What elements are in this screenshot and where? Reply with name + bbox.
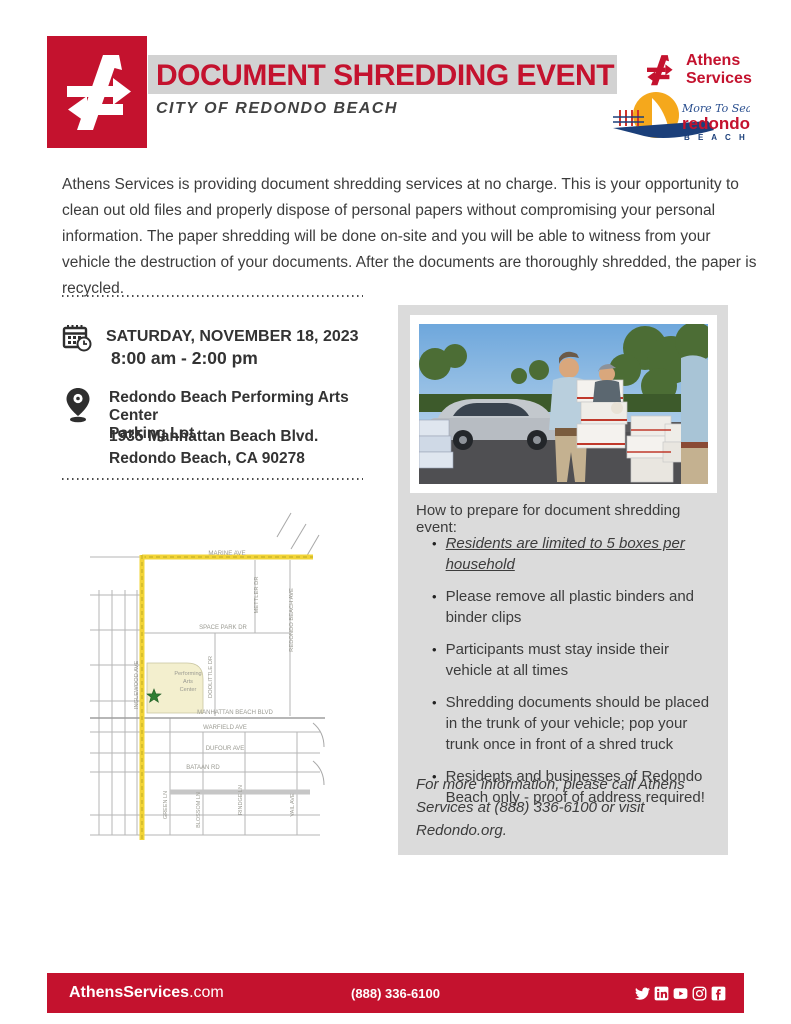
prepare-item: • Shredding documents should be placed i… [432, 692, 714, 755]
facebook-icon[interactable] [711, 986, 726, 1001]
athens-arrows-icon [47, 36, 147, 148]
street-label-green: GREEN LN [163, 791, 169, 819]
page-subtitle: CITY OF REDONDO BEACH [156, 100, 398, 118]
footer-bar: AthensServices.com (888) 336-6100 [47, 973, 744, 1013]
instagram-icon[interactable] [692, 986, 707, 1001]
redondo-beach-word: B E A C H [684, 133, 748, 142]
athens-wordmark-line2: Services [686, 70, 752, 88]
redondo-beach-logo: More To Sea redondo B E A C H [610, 90, 750, 153]
flyer-page: DOCUMENT SHREDDING EVENT CITY OF REDONDO… [0, 0, 791, 1024]
street-label-rindge: RINDGE LN [238, 785, 244, 815]
bullet-icon: • [432, 692, 437, 755]
prepare-item: • Please remove all plastic binders and … [432, 586, 714, 628]
athens-arrows-small-icon [638, 50, 680, 90]
street-label-vail: VAIL AVE [290, 793, 296, 816]
intro-paragraph: Athens Services is providing document sh… [62, 172, 758, 302]
prepare-item: • Residents are limited to 5 boxes per h… [432, 533, 714, 575]
street-label-inglewood: INGLEWOOD AVE [134, 661, 140, 710]
street-label-blossom: BLOSSOM LN [196, 792, 202, 828]
social-icons [635, 986, 726, 1001]
bullet-icon: • [432, 639, 437, 681]
street-label-manhattan-beach: MANHATTAN BEACH BLVD [197, 710, 273, 716]
event-date: SATURDAY, NOVEMBER 18, 2023 [106, 328, 359, 346]
dotted-separator-top [62, 295, 363, 297]
bullet-icon: • [432, 586, 437, 628]
location-map: MARINE AVE INGLEWOOD AVE METTLER DR REDO… [85, 505, 362, 850]
poi-label-line3: Center [180, 687, 197, 693]
street-label-doolittle: DOOLITTLE DR [208, 656, 214, 698]
event-address-line1: 1935 Manhattan Beach Blvd. [109, 428, 318, 446]
street-label-bataan: BATAAN RD [186, 765, 220, 771]
dotted-separator-bottom [62, 478, 363, 480]
prepare-item-text: Shredding documents should be placed in … [446, 692, 714, 755]
street-label-space-park: SPACE PARK DR [199, 625, 247, 631]
location-pin-icon [65, 387, 91, 423]
athens-logo-mark [47, 36, 147, 148]
youtube-icon[interactable] [673, 986, 688, 1001]
calendar-clock-icon [62, 323, 92, 353]
poi-label-line2: Arts [183, 679, 193, 685]
event-photo [419, 324, 708, 484]
street-label-marine: MARINE AVE [208, 550, 245, 557]
prepare-item-text: Participants must stay inside their vehi… [446, 639, 714, 681]
poi-label-line1: Performing [174, 671, 201, 677]
street-label-mettler: METTLER DR [254, 576, 260, 613]
info-panel: How to prepare for document shredding ev… [398, 305, 728, 855]
redondo-name: redondo [682, 114, 750, 133]
prepare-heading: How to prepare for document shredding ev… [416, 502, 716, 536]
event-address-line2: Redondo Beach, CA 90278 [109, 450, 305, 468]
event-venue-line1: Redondo Beach Performing Arts Center [109, 389, 359, 425]
athens-wordmark-line1: Athens [686, 52, 752, 70]
prepare-item-text: Residents are limited to 5 boxes per hou… [446, 533, 714, 575]
more-info-note: For more information, please call Athens… [416, 773, 716, 842]
title-bar: DOCUMENT SHREDDING EVENT [148, 55, 617, 94]
photo-frame [410, 315, 717, 493]
street-label-dufour: DUFOUR AVE [206, 746, 245, 752]
bullet-icon: • [432, 533, 437, 575]
page-title: DOCUMENT SHREDDING EVENT [148, 55, 617, 94]
athens-services-logo: Athens Services [638, 50, 752, 90]
event-time: 8:00 am - 2:00 pm [111, 348, 258, 369]
linkedin-icon[interactable] [654, 986, 669, 1001]
twitter-icon[interactable] [635, 986, 650, 1001]
street-label-redondo-beach-ave: REDONDO BEACH AVE [289, 588, 295, 652]
prepare-item: • Participants must stay inside their ve… [432, 639, 714, 681]
street-label-warfield: WARFIELD AVE [203, 725, 247, 731]
prepare-item-text: Please remove all plastic binders and bi… [446, 586, 714, 628]
